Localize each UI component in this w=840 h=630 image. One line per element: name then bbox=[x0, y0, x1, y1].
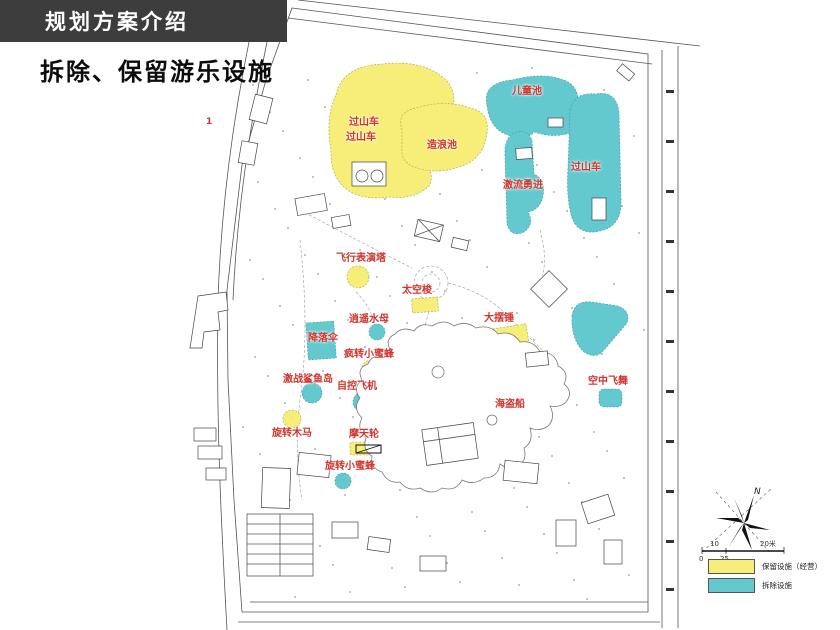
road-dash-marks bbox=[666, 90, 674, 591]
label-crazy-bee-ride: 疯转小蜜蜂 bbox=[344, 350, 394, 360]
zone-carousel bbox=[283, 410, 301, 428]
legend-swatch-cyan bbox=[708, 578, 755, 593]
label-pendulum-ride: 大摆锤 bbox=[484, 314, 514, 324]
map-marker-number: 1 bbox=[206, 117, 212, 127]
compass-north-label: N bbox=[754, 487, 761, 497]
label-roller-coaster-right: 过山车 bbox=[571, 163, 601, 173]
label-roller-coaster-b: 过山车 bbox=[346, 133, 376, 143]
legend-label-retain: 保留设施（经营） bbox=[762, 561, 822, 572]
coaster-station bbox=[352, 162, 386, 186]
label-carousel: 旋转木马 bbox=[272, 429, 312, 439]
label-space-shuttle: 太空梭 bbox=[402, 286, 432, 296]
slide-subtitle: 拆除、保留游乐设施 bbox=[40, 52, 274, 87]
legend: 保留设施（经营） 拆除设施 bbox=[708, 559, 840, 597]
label-roller-coaster-a: 过山车 bbox=[349, 118, 379, 128]
parking-lot bbox=[247, 514, 313, 576]
label-sky-flying-ride: 空中飞舞 bbox=[588, 377, 628, 387]
label-parachute-ride: 降落伞 bbox=[308, 334, 338, 344]
zone-jellyfish bbox=[369, 324, 385, 340]
label-pirate-ship: 海盗船 bbox=[495, 400, 525, 410]
label-jellyfish-ride: 逍遥水母 bbox=[349, 315, 389, 325]
zone-shark-island bbox=[302, 383, 322, 403]
legend-item-demolish: 拆除设施 bbox=[708, 578, 840, 593]
page-title: 规划方案介绍 bbox=[45, 6, 189, 36]
site-plan-map: N 10 20米 0 25 bbox=[0, 0, 840, 630]
legend-swatch-yellow bbox=[708, 559, 755, 574]
label-wave-pool: 造浪池 bbox=[427, 141, 457, 151]
scale-label-1: 20米 bbox=[760, 539, 776, 548]
label-spinning-bee-ride: 旋转小蜜蜂 bbox=[325, 462, 375, 472]
zone-sky-flying bbox=[599, 389, 622, 407]
scale-label-0: 10 bbox=[710, 540, 719, 548]
label-self-control-plane: 自控飞机 bbox=[337, 382, 377, 392]
label-log-flume: 激流勇进 bbox=[503, 181, 543, 191]
label-children-pool: 儿童池 bbox=[512, 87, 542, 97]
legend-item-retain: 保留设施（经营） bbox=[708, 559, 840, 574]
header-bar: 规划方案介绍 bbox=[0, 0, 287, 42]
zone-space-shuttle bbox=[412, 297, 439, 313]
zone-spinning-bee bbox=[335, 473, 351, 489]
zone-flight-tower bbox=[347, 266, 369, 288]
label-ferris-wheel: 摩天轮 bbox=[349, 430, 379, 440]
label-flight-performance-tower: 飞行表演塔 bbox=[336, 254, 386, 264]
zone-wave-pool bbox=[401, 104, 488, 172]
label-shark-island-ride: 激战鲨鱼岛 bbox=[283, 375, 333, 385]
scale-label-2: 0 bbox=[699, 555, 703, 563]
legend-label-demolish: 拆除设施 bbox=[762, 580, 792, 591]
zone-triangle-area bbox=[572, 302, 628, 356]
